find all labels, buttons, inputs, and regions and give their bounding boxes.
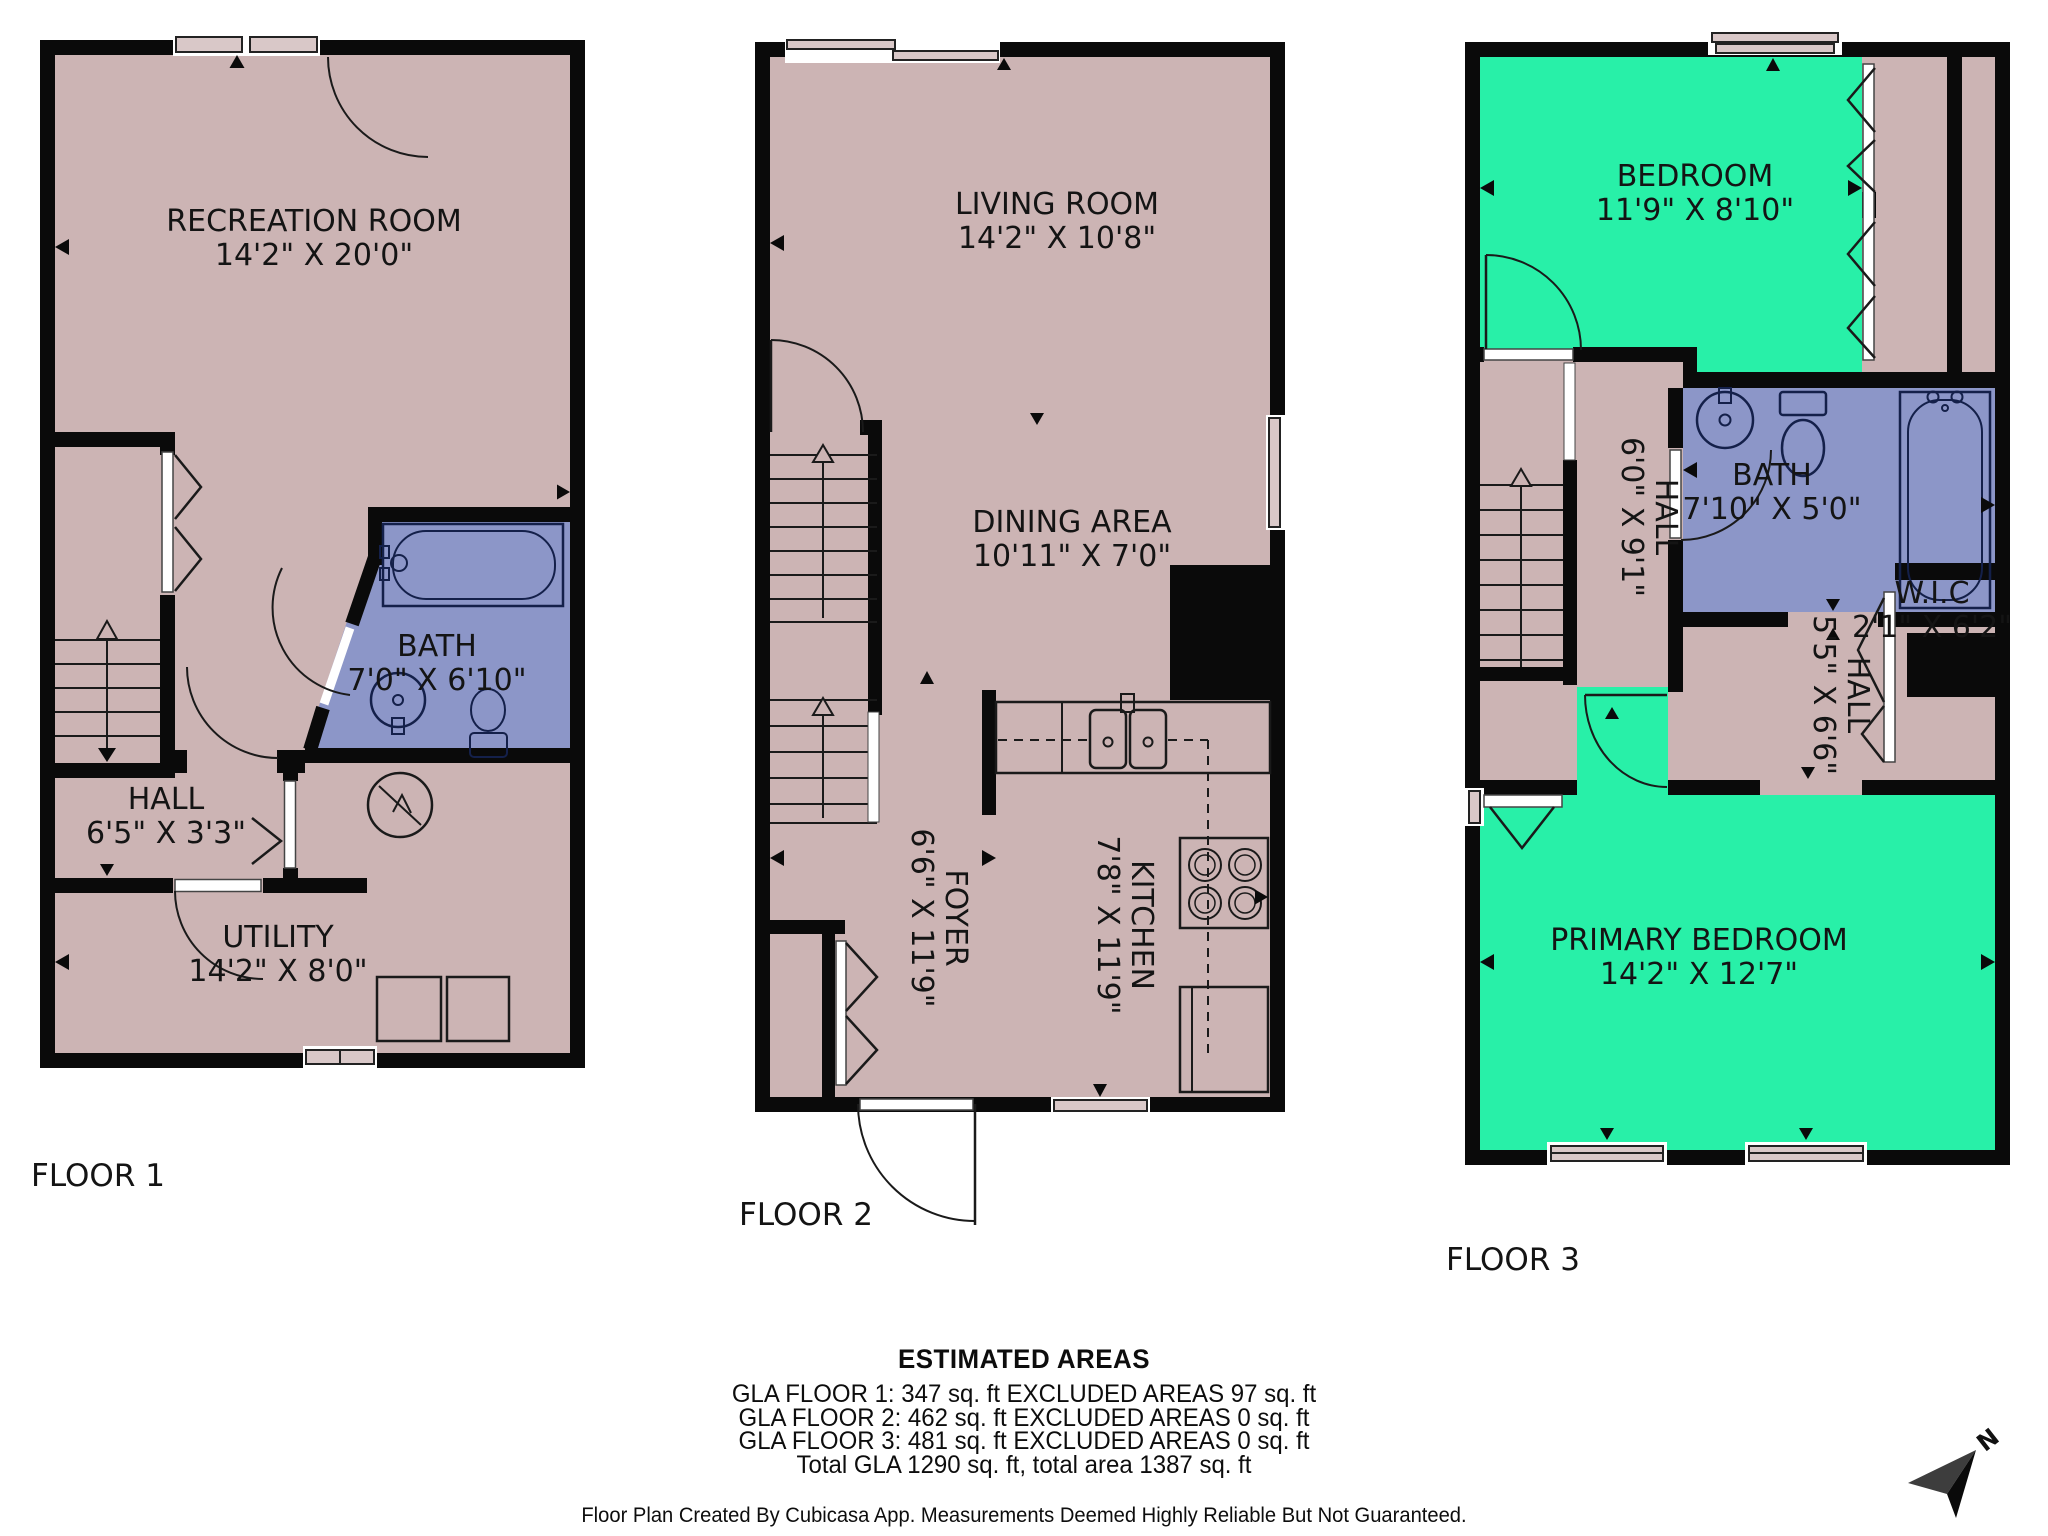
room-label-hall-f1: HALL 6'5" X 3'3" — [86, 783, 246, 851]
room-label-primary-bedroom: PRIMARY BEDROOM 14'2" X 12'7" — [1550, 924, 1848, 992]
room-label-bath-f3: BATH 7'10" X 5'0" — [1682, 459, 1861, 527]
room-label-recreation: RECREATION ROOM 14'2" X 20'0" — [166, 205, 461, 273]
gla-floor3-line: GLA FLOOR 3: 481 sq. ft EXCLUDED AREAS 0… — [581, 1430, 1466, 1454]
gla-total-line: Total GLA 1290 sq. ft, total area 1387 s… — [581, 1454, 1466, 1478]
estimated-areas-block: ESTIMATED AREAS GLA FLOOR 1: 347 sq. ft … — [581, 1344, 1466, 1528]
room-label-hall-lower-f3: HALL 5'5" X 6'6" — [1806, 615, 1874, 775]
room-label-kitchen: KITCHEN 7'8" X 11'9" — [1090, 835, 1158, 1014]
floor3-window-left — [1465, 788, 1484, 826]
room-label-living: LIVING ROOM 14'2" X 10'8" — [955, 188, 1159, 256]
floor1-window-top — [173, 33, 320, 56]
room-label-foyer: FOYER 6'6" X 11'9" — [904, 828, 972, 1007]
floor2-entry-door — [858, 1099, 975, 1225]
floor-plan-canvas: RECREATION ROOM 14'2" X 20'0" BATH 7'0" … — [0, 0, 2048, 1536]
estimated-areas-title: ESTIMATED AREAS — [581, 1344, 1466, 1375]
floor2-window-bottom — [1051, 1097, 1150, 1114]
room-label-hall-upper-f3: HALL 6'0" X 9'1" — [1614, 437, 1682, 597]
floor2-window-right — [1266, 415, 1285, 530]
floor1-window-bottom — [303, 1046, 377, 1068]
compass-icon — [1908, 1450, 1976, 1518]
floor3-window-bedroom — [1708, 30, 1842, 55]
room-label-wic: W.I.C 2'1" X 6'2" — [1852, 577, 2012, 645]
floor2-label: FLOOR 2 — [739, 1197, 873, 1233]
room-label-dining: DINING AREA 10'11" X 7'0" — [972, 506, 1171, 574]
floor3-label: FLOOR 3 — [1446, 1242, 1580, 1278]
room-label-utility: UTILITY 14'2" X 8'0" — [188, 921, 367, 989]
floor1-plan — [47, 33, 578, 1068]
room-label-bath-f1: BATH 7'0" X 6'10" — [347, 630, 526, 698]
floor1-label: FLOOR 1 — [31, 1158, 165, 1194]
room-label-bedroom: BEDROOM 11'9" X 8'10" — [1596, 160, 1794, 228]
disclaimer-text: Floor Plan Created By Cubicasa App. Meas… — [581, 1504, 1466, 1528]
floor2-sliding-door — [785, 36, 1000, 63]
gla-floor1-line: GLA FLOOR 1: 347 sq. ft EXCLUDED AREAS 9… — [581, 1383, 1466, 1407]
